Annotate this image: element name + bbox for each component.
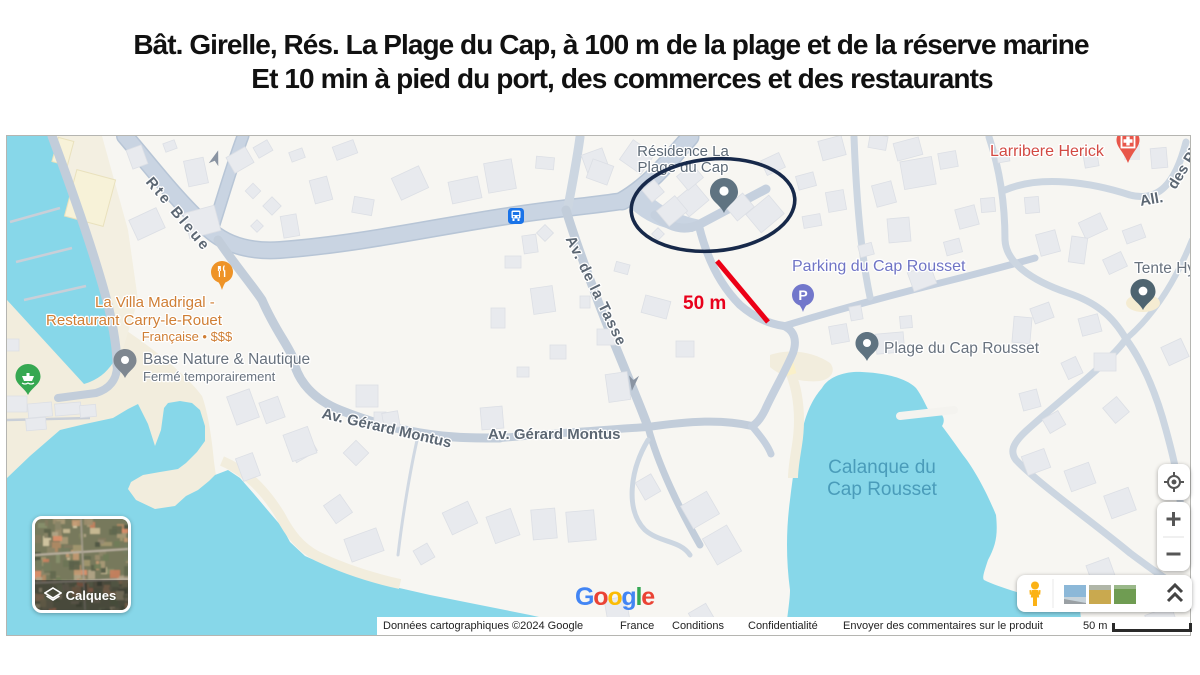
svg-text:Tente Hy: Tente Hy	[1134, 260, 1190, 277]
svg-text:All.: All.	[1138, 189, 1164, 210]
svg-text:Plage du Cap Rousset: Plage du Cap Rousset	[884, 340, 1040, 357]
svg-text:Parking du Cap Rousset: Parking du Cap Rousset	[792, 258, 966, 275]
svg-text:Larribere Herick: Larribere Herick	[990, 143, 1105, 160]
svg-text:Française • $$$: Française • $$$	[142, 329, 233, 344]
svg-text:Av. Gérard Montus: Av. Gérard Montus	[488, 426, 621, 443]
svg-text:Cap Rousset: Cap Rousset	[827, 479, 938, 500]
svg-text:Fermé temporairement: Fermé temporairement	[143, 369, 276, 384]
svg-text:Av. de la Tasse: Av. de la Tasse	[562, 233, 630, 349]
svg-text:Av. Gérard Montus: Av. Gérard Montus	[320, 405, 453, 451]
svg-text:50 m: 50 m	[683, 293, 726, 314]
svg-text:P: P	[798, 287, 807, 303]
svg-text:Restaurant Carry-le-Rouet: Restaurant Carry-le-Rouet	[46, 312, 223, 329]
svg-text:La Villa Madrigal -: La Villa Madrigal -	[95, 294, 215, 311]
svg-text:Calanque du: Calanque du	[828, 457, 936, 478]
svg-text:Base Nature & Nautique: Base Nature & Nautique	[143, 351, 310, 368]
svg-text:Plage du Cap: Plage du Cap	[638, 159, 729, 176]
